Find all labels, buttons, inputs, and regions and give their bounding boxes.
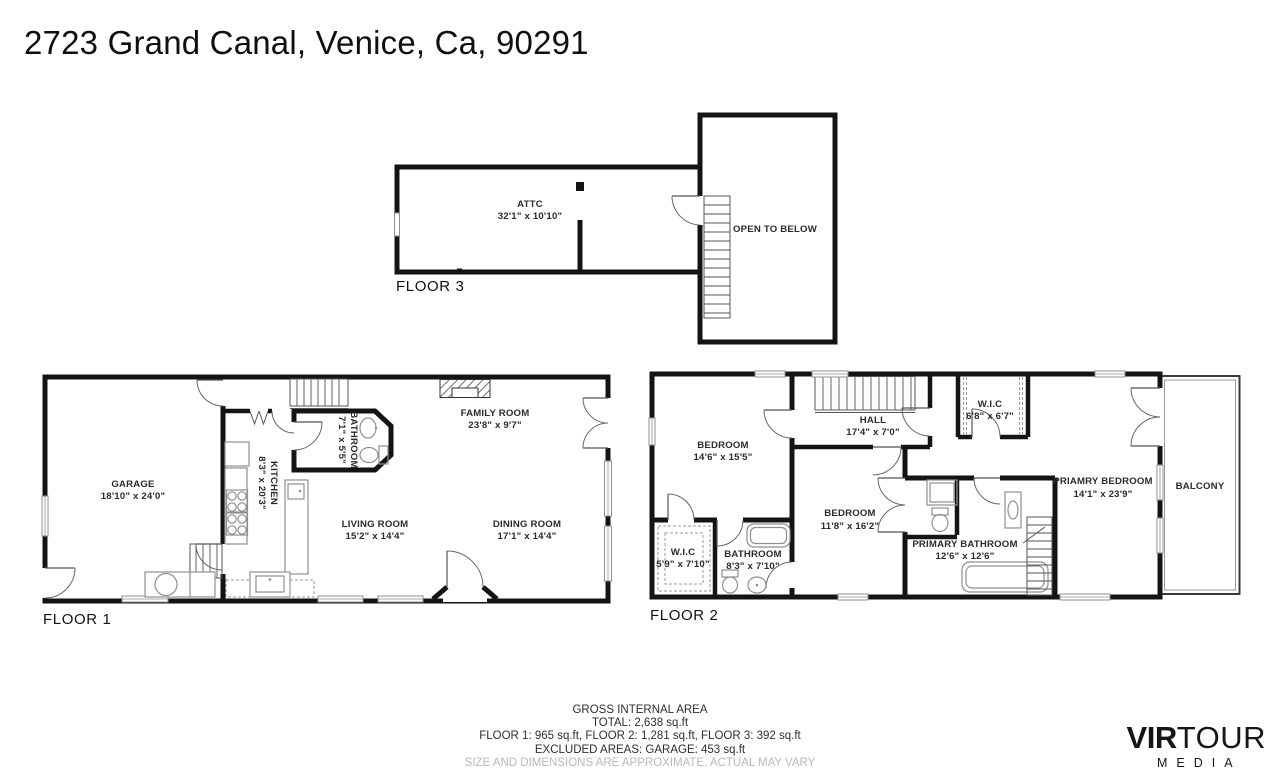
page-title: 2723 Grand Canal, Venice, Ca, 90291 [24,24,589,62]
door-arc [764,410,792,438]
french-door-arcs [878,478,905,532]
floor-areas: FLOOR 1: 965 sq.ft, FLOOR 2: 1,281 sq.ft… [465,730,816,743]
excluded-areas: EXCLUDED AREAS: GARAGE: 453 sq.ft [465,744,816,757]
floor3-label: FLOOR 3 [396,278,464,295]
room-dims-dining: 17'1" x 14'4" [498,531,557,542]
french-door-arcs [1131,388,1160,446]
room-dims-bathroom2: 8'3" x 7'10" [726,561,779,572]
stairs [815,377,915,411]
door-arc [272,411,294,433]
room-dims-living: 15'2" x 14'4" [346,531,405,542]
bathroom-sink [360,418,376,438]
room-label-bathroom: BATHROOM [348,411,359,468]
room-label-primary-bedroom: PRIAMRY BEDROOM [1053,476,1152,487]
disclaimer: SIZE AND DIMENSIONS ARE APPROXIMATE, ACT… [465,757,816,770]
door-arc [294,422,322,450]
area-summary: GROSS INTERNAL AREA TOTAL: 2,638 sq.ft F… [465,704,816,770]
total-area: TOTAL: 2,638 sq.ft [465,717,816,730]
door-arc [197,380,223,406]
room-label-bedroom2: BEDROOM [824,508,876,519]
door-arc [873,447,901,475]
room-label-wic-top: W.I.C [978,399,1002,410]
floor2-label: FLOOR 2 [650,607,718,624]
french-door-arcs [583,398,608,448]
room-label-wic-bottom: W.I.C [671,547,695,558]
floor1-label: FLOOR 1 [43,611,111,628]
room-dims-garage: 18'10" x 24'0" [101,491,165,502]
room-label-bathroom2: BATHROOM [724,549,781,560]
room-dims-hall: 17'4" x 7'0" [846,427,899,438]
window [42,496,48,536]
gross-internal-area-heading: GROSS INTERNAL AREA [465,704,816,717]
toilet-bowl [360,448,378,463]
door-arc [717,520,743,546]
room-dims-attic: 32'1" x 10'10" [498,211,562,222]
room-label-living: LIVING ROOM [342,519,409,530]
room-label-attic: ATTC [517,199,543,210]
floor3-plan: ATTC 32'1" x 10'10" OPEN TO BELOW FLOOR … [393,106,843,351]
room-label-hall: HALL [860,415,886,426]
room-label-dining: DINING ROOM [493,519,561,530]
room-label-bedroom1: BEDROOM [697,440,749,451]
room-dims-wic-top: 6'8" x 6'7" [966,411,1014,422]
room-label-open-to-below: OPEN TO BELOW [733,224,818,235]
floor1-plan: GARAGE 18'10" x 24'0" KITCHEN 8'3" x 20'… [38,366,618,628]
door-arc [672,196,700,225]
door-arc [974,478,1000,504]
fridge [225,442,249,466]
room-label-garage: GARAGE [111,479,155,490]
closet-bifold-doors [250,411,268,424]
floor2-plan: BEDROOM 14'6" x 15'5" HALL 17'4" x 7'0" … [645,366,1245,628]
door-arc [45,568,75,598]
door-arc [196,544,222,570]
room-dims-wic-bottom: 5'9" x 7'10" [656,559,709,570]
room-dims-primary-bedroom: 14'1" x 23'9" [1074,489,1133,500]
room-label-family: FAMILY ROOM [461,408,530,419]
room-dims-bathroom: 7'1" x 5'5" [336,416,347,464]
shower [927,480,957,505]
toilet-bowl [723,577,738,593]
door-arc [668,494,694,520]
window [395,213,400,236]
toilet-bowl [932,515,948,532]
room-dims-kitchen: 8'3" x 20'3" [256,456,267,509]
room-label-balcony: BALCONY [1176,481,1225,492]
room-dims-bedroom2: 11'8" x 16'2" [821,521,879,532]
room-dims-primary-bathroom: 12'6" x 12'6" [936,551,995,562]
virtour-media-logo: VIRTOUR MEDIA [1127,722,1266,770]
room-dims-bedroom1: 14'6" x 15'5" [694,452,753,463]
logo-brand-bold: VIR [1127,720,1177,755]
room-dims-family: 23'8" x 9'7" [468,420,521,431]
logo-subtitle: MEDIA [1127,756,1266,770]
room-label-kitchen: KITCHEN [268,461,279,505]
room-label-primary-bathroom: PRIMARY BATHROOM [912,539,1017,550]
door-arc [447,551,483,587]
logo-brand-light: TOUR [1177,720,1266,755]
